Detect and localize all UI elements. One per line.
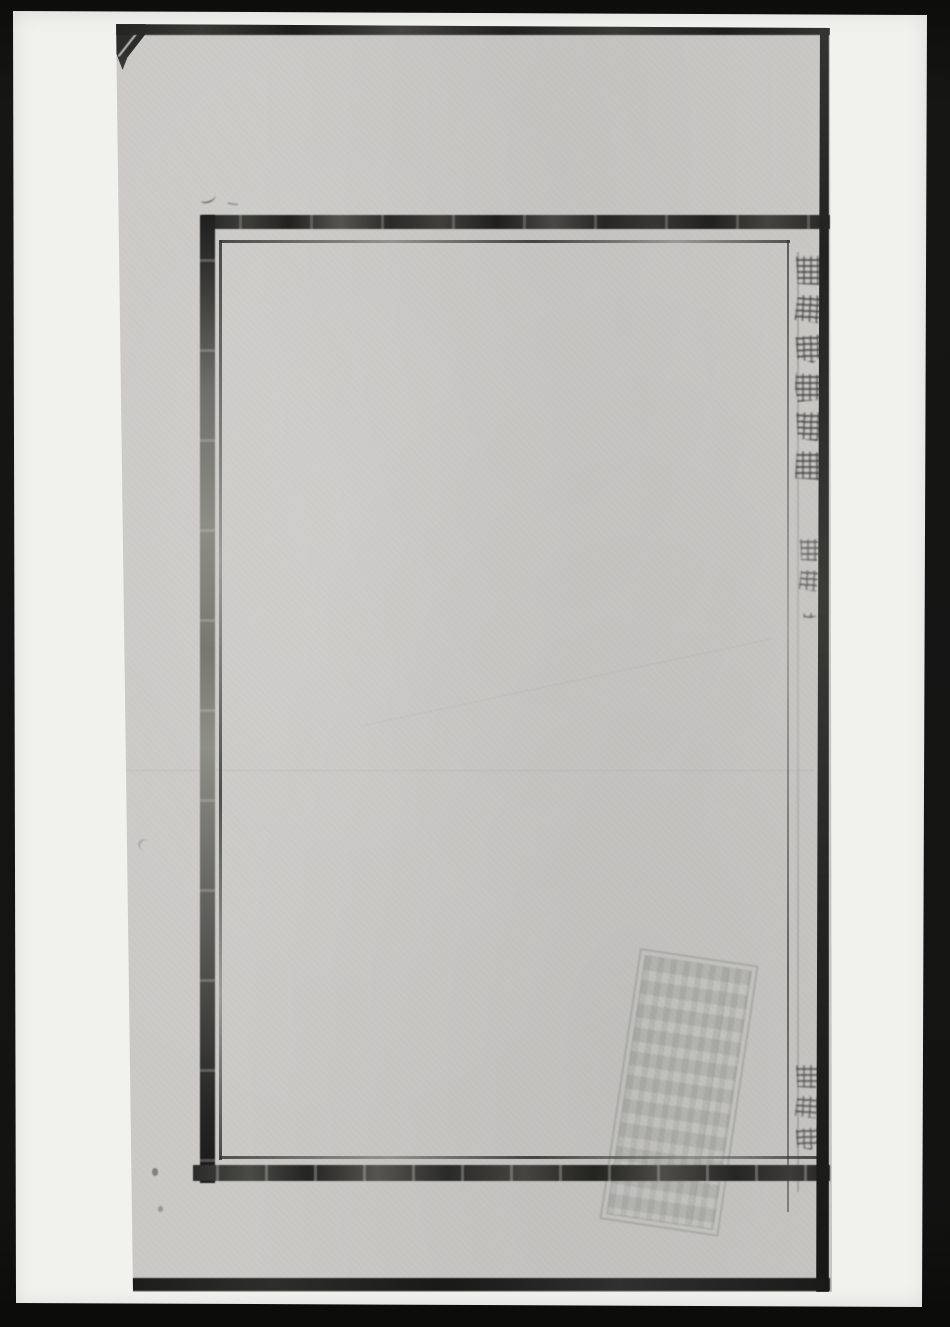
banxin-divider-line: [787, 240, 789, 1212]
margin-smudge: [136, 837, 156, 855]
banxin-divider-line-secondary: [797, 252, 799, 1192]
scanned-page: 銀谷稅氏宗譜 卷之一 惇慶堂: [116, 22, 832, 1292]
pencil-mark: [228, 197, 239, 205]
ink-speck: [152, 1168, 158, 1176]
frame-border-top: [202, 215, 830, 229]
frame-border-bottom: [193, 1165, 830, 1181]
frame-inner-line-bottom: [220, 1156, 822, 1159]
frame-inner-line-top: [220, 240, 790, 243]
page-edge-bottom: [130, 1278, 830, 1291]
frame-border-left: [200, 215, 215, 1183]
frame-inner-line-left: [219, 240, 222, 1160]
scanner-background: 銀谷稅氏宗譜 卷之一 惇慶堂: [0, 0, 950, 1327]
ink-speck: [158, 1206, 163, 1212]
seal-stamp-icon: [600, 948, 759, 1237]
paper-crease-horizontal: [124, 770, 814, 771]
paper-crease-diagonal: [360, 638, 771, 726]
pencil-mark: [199, 190, 217, 205]
